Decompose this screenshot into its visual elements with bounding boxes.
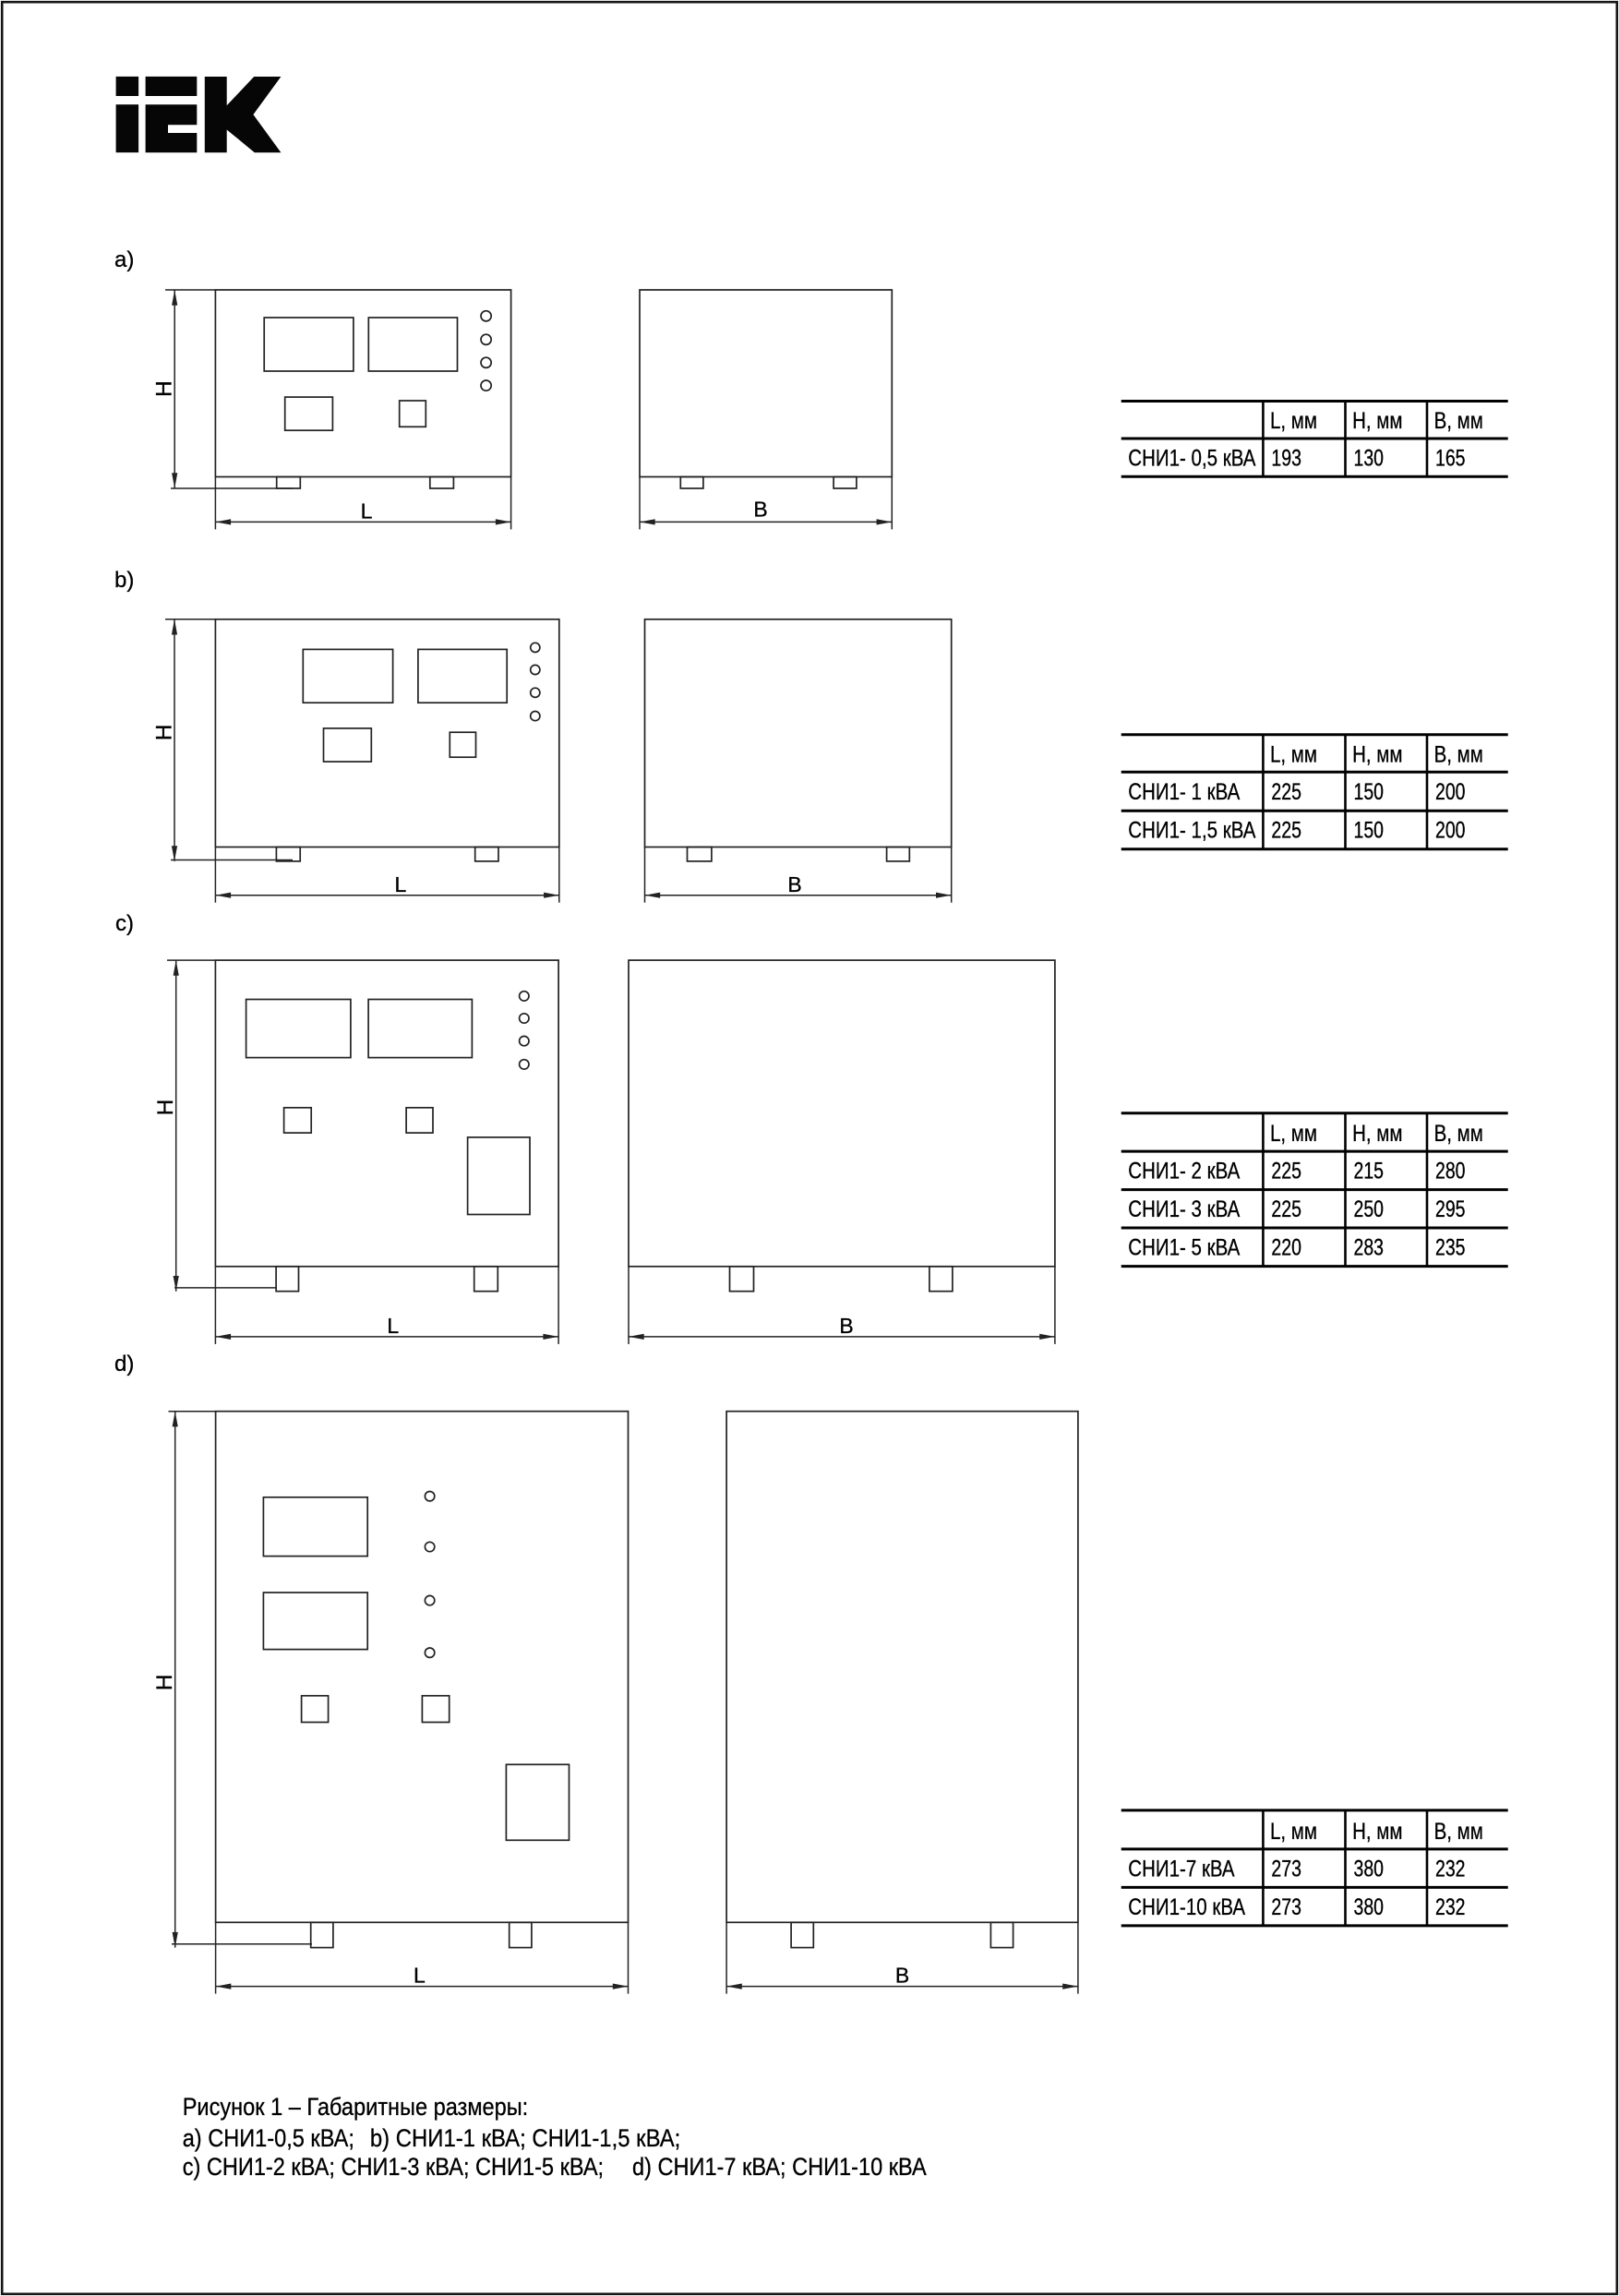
svg-text:273: 273	[1271, 1856, 1301, 1881]
svg-text:220: 220	[1271, 1234, 1301, 1260]
svg-text:225: 225	[1271, 779, 1301, 805]
svg-text:273: 273	[1271, 1894, 1301, 1920]
svg-text:165: 165	[1435, 445, 1466, 471]
svg-text:a): a)	[114, 247, 134, 272]
svg-text:B: B	[839, 1314, 853, 1338]
svg-text:Н, мм: Н, мм	[1352, 1818, 1402, 1844]
svg-text:232: 232	[1435, 1894, 1466, 1920]
svg-text:L, мм: L, мм	[1270, 407, 1317, 433]
svg-text:280: 280	[1435, 1158, 1466, 1184]
svg-text:d) СНИ1-7 кВА; СНИ1-10 кВА: d) СНИ1-7 кВА; СНИ1-10 кВА	[632, 2154, 927, 2182]
svg-text:b): b)	[114, 568, 134, 593]
svg-text:СНИ1- 1 кВА: СНИ1- 1 кВА	[1128, 778, 1241, 804]
svg-text:СНИ1-10 кВА: СНИ1-10 кВА	[1128, 1893, 1245, 1919]
svg-text:283: 283	[1354, 1234, 1385, 1260]
svg-text:СНИ1- 0,5 кВА: СНИ1- 0,5 кВА	[1128, 444, 1256, 470]
svg-text:380: 380	[1354, 1894, 1385, 1920]
svg-text:СНИ1- 5 кВА: СНИ1- 5 кВА	[1128, 1234, 1241, 1260]
svg-text:Н, мм: Н, мм	[1352, 407, 1402, 433]
svg-text:215: 215	[1354, 1158, 1385, 1184]
svg-text:H: H	[152, 1675, 177, 1691]
svg-text:150: 150	[1354, 779, 1385, 805]
svg-text:b) СНИ1-1 кВА; СНИ1-1,5 кВА;: b) СНИ1-1 кВА; СНИ1-1,5 кВА;	[370, 2125, 680, 2153]
svg-text:200: 200	[1435, 817, 1466, 843]
svg-text:СНИ1- 3 кВА: СНИ1- 3 кВА	[1128, 1196, 1241, 1221]
svg-text:В, мм: В, мм	[1434, 1120, 1483, 1146]
svg-text:В, мм: В, мм	[1434, 1818, 1483, 1844]
svg-text:L: L	[387, 1314, 399, 1338]
svg-text:235: 235	[1435, 1234, 1466, 1260]
svg-text:B: B	[895, 1964, 909, 1988]
svg-text:d): d)	[114, 1352, 134, 1376]
svg-text:150: 150	[1354, 817, 1385, 843]
svg-text:В, мм: В, мм	[1434, 740, 1483, 766]
svg-text:H: H	[152, 725, 177, 741]
svg-text:250: 250	[1354, 1196, 1385, 1222]
svg-text:200: 200	[1435, 779, 1466, 805]
svg-text:130: 130	[1354, 445, 1385, 471]
svg-text:a) СНИ1-0,5 кВА;: a) СНИ1-0,5 кВА;	[183, 2125, 354, 2153]
svg-text:c): c)	[115, 911, 134, 936]
svg-text:СНИ1- 1,5 кВА: СНИ1- 1,5 кВА	[1128, 817, 1256, 843]
svg-text:H: H	[153, 1100, 178, 1116]
svg-text:L: L	[395, 872, 407, 896]
svg-text:H: H	[152, 380, 177, 397]
svg-text:L, мм: L, мм	[1270, 1818, 1317, 1844]
svg-text:L: L	[414, 1964, 426, 1988]
svg-text:B: B	[753, 498, 767, 522]
svg-text:295: 295	[1435, 1196, 1466, 1222]
svg-text:193: 193	[1271, 445, 1301, 471]
svg-text:Н, мм: Н, мм	[1352, 740, 1402, 766]
svg-text:Н, мм: Н, мм	[1352, 1120, 1402, 1146]
svg-text:232: 232	[1435, 1856, 1466, 1881]
svg-text:L, мм: L, мм	[1270, 1120, 1317, 1146]
svg-text:380: 380	[1354, 1856, 1385, 1881]
svg-text:СНИ1- 2 кВА: СНИ1- 2 кВА	[1128, 1158, 1241, 1184]
svg-text:L: L	[361, 499, 373, 523]
svg-text:c) СНИ1-2 кВА; СНИ1-3 кВА; СНИ: c) СНИ1-2 кВА; СНИ1-3 кВА; СНИ1-5 кВА;	[183, 2154, 604, 2182]
svg-text:225: 225	[1271, 1158, 1301, 1184]
svg-text:Рисунок 1 – Габаритные размеры: Рисунок 1 – Габаритные размеры:	[183, 2094, 529, 2122]
svg-text:225: 225	[1271, 817, 1301, 843]
svg-text:В, мм: В, мм	[1434, 407, 1483, 433]
svg-text:СНИ1-7 кВА: СНИ1-7 кВА	[1128, 1855, 1235, 1881]
svg-text:B: B	[787, 872, 801, 896]
svg-text:L, мм: L, мм	[1270, 740, 1317, 766]
svg-text:225: 225	[1271, 1196, 1301, 1222]
